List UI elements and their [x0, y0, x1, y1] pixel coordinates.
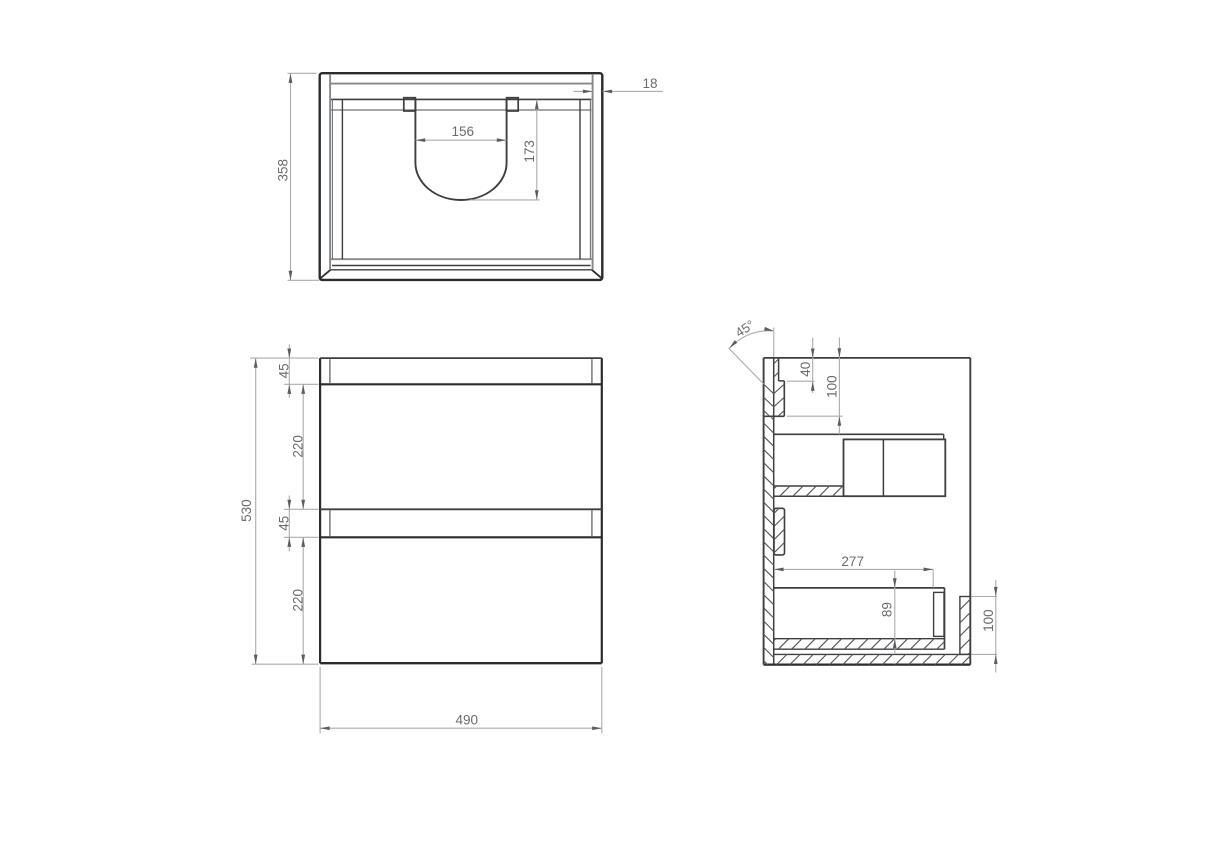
svg-text:530: 530: [239, 499, 254, 522]
svg-text:100: 100: [981, 609, 996, 632]
svg-text:45: 45: [276, 363, 291, 378]
svg-text:100: 100: [825, 375, 840, 398]
svg-text:40: 40: [798, 362, 813, 377]
svg-text:18: 18: [642, 76, 657, 91]
svg-text:173: 173: [522, 140, 537, 163]
svg-text:220: 220: [290, 435, 305, 458]
svg-text:45: 45: [276, 516, 291, 531]
svg-text:220: 220: [290, 589, 305, 612]
svg-text:358: 358: [276, 159, 291, 182]
svg-text:490: 490: [456, 713, 479, 728]
svg-text:156: 156: [452, 124, 475, 139]
svg-text:277: 277: [841, 554, 864, 569]
svg-text:89: 89: [880, 602, 895, 617]
